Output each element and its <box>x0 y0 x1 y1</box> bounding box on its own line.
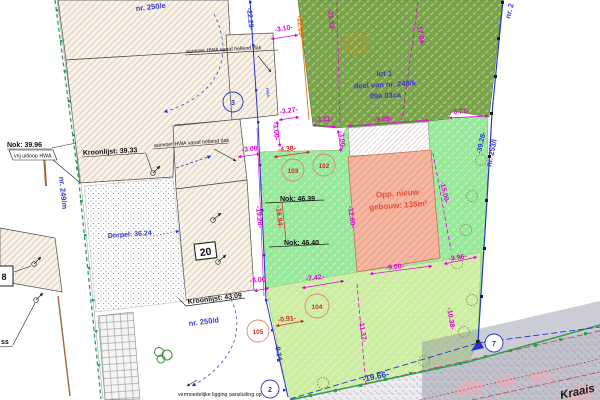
building-20-wing <box>173 119 247 189</box>
point-102: 102 <box>319 163 330 170</box>
site-plan: nr. 250/e nr. 249/m nr. 250/d nr. 253/l … <box>0 0 600 400</box>
dim-9-09: -9.09- <box>374 116 393 124</box>
vermoedelijke-ligging: vermoedelijke ligging aansluiting op <box>178 392 262 398</box>
label-ss: ss <box>1 339 9 346</box>
hwa-small-1: HWA <box>265 88 271 98</box>
nok-46-40: Nok: 46.40 <box>284 240 319 247</box>
point-3: 3 <box>231 100 235 107</box>
nok-46-39: Nok: 46.39 <box>280 196 315 203</box>
vrij-uitloop-hwa: vrij uitloop HWA <box>14 154 52 160</box>
point-105: 105 <box>253 329 264 336</box>
new-building-footprint <box>348 150 440 272</box>
nok-39-96: Nok: 39.96 <box>7 142 42 149</box>
lot1-line3: 09a 03ca <box>370 90 403 101</box>
point-104: 104 <box>312 304 323 311</box>
dim-6-71: -6.71- <box>451 108 470 116</box>
housenumber-20: 20 <box>199 246 212 259</box>
dim-3-11: -3.11- <box>315 116 334 124</box>
housenumber-8: 8 <box>1 272 6 282</box>
point-7: 7 <box>492 341 496 348</box>
point-103: 103 <box>288 168 299 175</box>
building-20-main <box>176 180 254 300</box>
point-2: 2 <box>268 387 272 394</box>
tiled-paving <box>98 312 140 400</box>
hwa-small-2: HWA <box>258 182 264 192</box>
site-plan-drawing: nr. 250/e nr. 249/m nr. 250/d nr. 253/l … <box>0 0 600 400</box>
terrace-stippled <box>84 178 186 312</box>
lot1-line1: lot 1 <box>376 69 392 79</box>
